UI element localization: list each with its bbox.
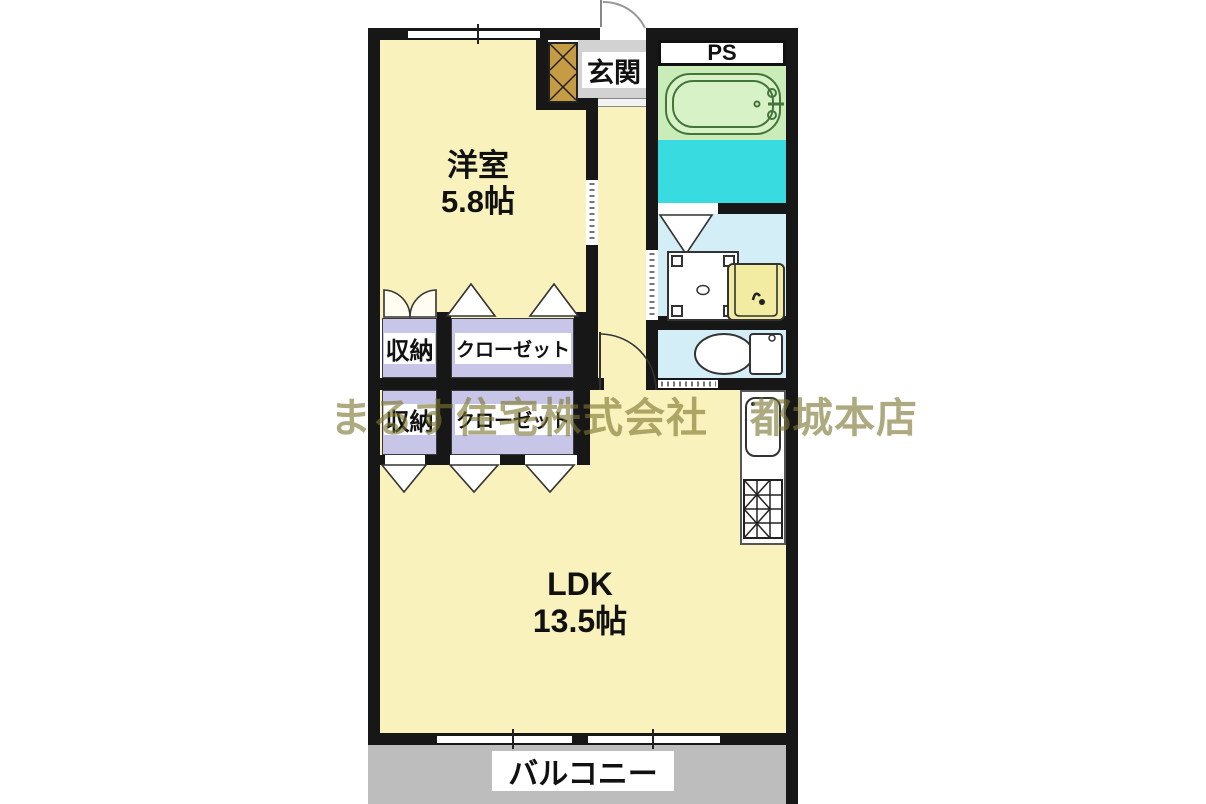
entrance-label: 玄関 — [587, 51, 641, 90]
ldk-name: LDK — [480, 566, 680, 603]
washbasin — [728, 264, 784, 320]
western-room-size: 5.8帖 — [398, 184, 558, 220]
toilet — [695, 334, 782, 374]
western-room-label: 洋室 5.8帖 — [398, 148, 558, 219]
western-room-name: 洋室 — [398, 148, 558, 184]
gas-stove — [744, 480, 782, 538]
entrance-door-swing — [601, 0, 645, 28]
shoe-cabinet-marks — [550, 44, 576, 100]
hall-ldk-door-swing — [600, 332, 656, 390]
bathtub — [666, 74, 784, 134]
entrance-label-box: 玄関 — [582, 52, 646, 88]
balcony-label-box: バルコニー — [492, 751, 674, 791]
ldk-size: 13.5帖 — [480, 603, 680, 640]
storage-lower-folding-doors — [382, 465, 574, 492]
closet-upper-folding-doors — [447, 284, 578, 316]
bath-folding-door — [660, 215, 712, 254]
balcony-label: バルコニー — [508, 749, 657, 793]
ldk-label: LDK 13.5帖 — [480, 566, 680, 640]
storage-upper-swing-doors — [384, 290, 436, 317]
watermark-text: まるす住宅株式会社 都城本店 — [330, 384, 918, 444]
floor-plan: PS — [0, 0, 1206, 804]
